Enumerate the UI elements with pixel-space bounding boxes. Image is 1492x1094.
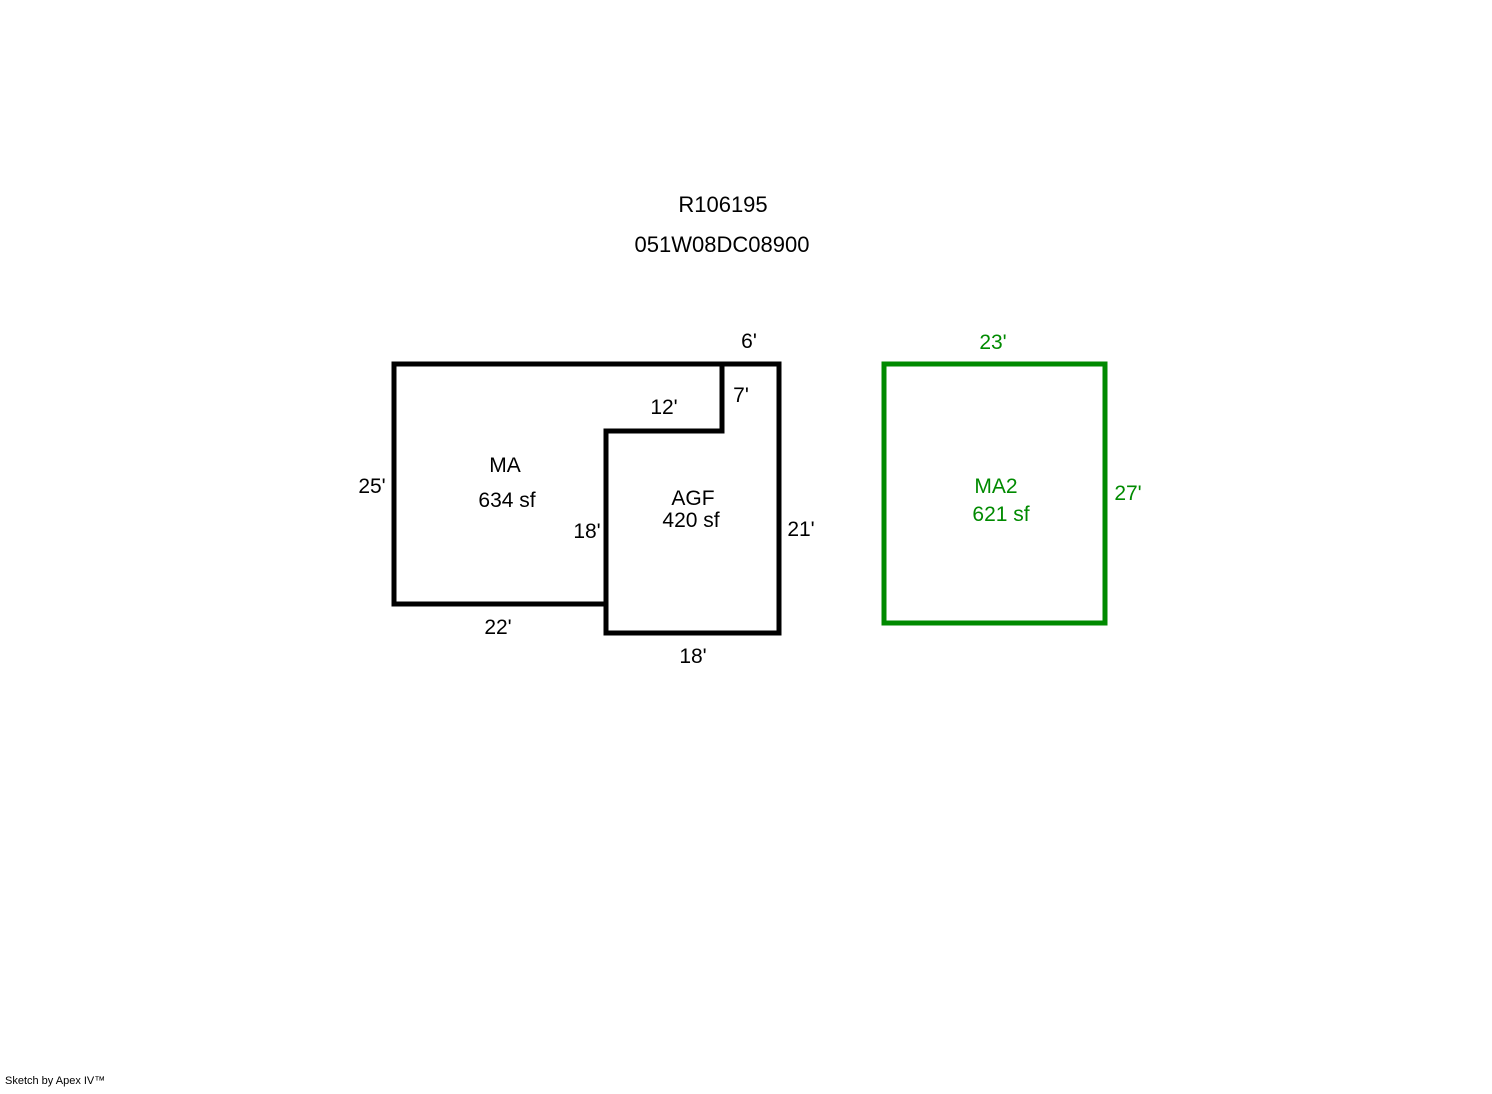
parcel-id-label: 051W08DC08900 [635, 234, 810, 256]
ma-dim-notch-vertical: 18' [573, 521, 600, 543]
agf-name-label: AGF [671, 488, 714, 510]
sketch-credit-label: Sketch by Apex IV™ [5, 1075, 105, 1087]
agf-dim-right-upper: 7' [733, 385, 749, 407]
ma-dim-notch-horizontal: 12' [650, 397, 677, 419]
ma2-dim-right: 27' [1114, 483, 1141, 505]
sketch-drawing [0, 0, 1492, 1094]
ma-dim-bottom: 22' [484, 617, 511, 639]
sketch-page: R106195 051W08DC08900 MA 634 sf 25' 22' … [0, 0, 1492, 1094]
ma-name-label: MA [489, 455, 521, 477]
ma2-area-label: 621 sf [972, 504, 1029, 526]
agf-dim-bottom: 18' [679, 646, 706, 668]
agf-area-label: 420 sf [662, 510, 719, 532]
record-id-label: R106195 [678, 194, 767, 216]
ma2-name-label: MA2 [974, 476, 1017, 498]
ma2-dim-top: 23' [979, 332, 1006, 354]
ma-area-label: 634 sf [478, 490, 535, 512]
agf-dim-right-lower: 21' [787, 519, 814, 541]
agf-dim-top: 6' [741, 331, 757, 353]
ma-dim-left: 25' [358, 476, 385, 498]
